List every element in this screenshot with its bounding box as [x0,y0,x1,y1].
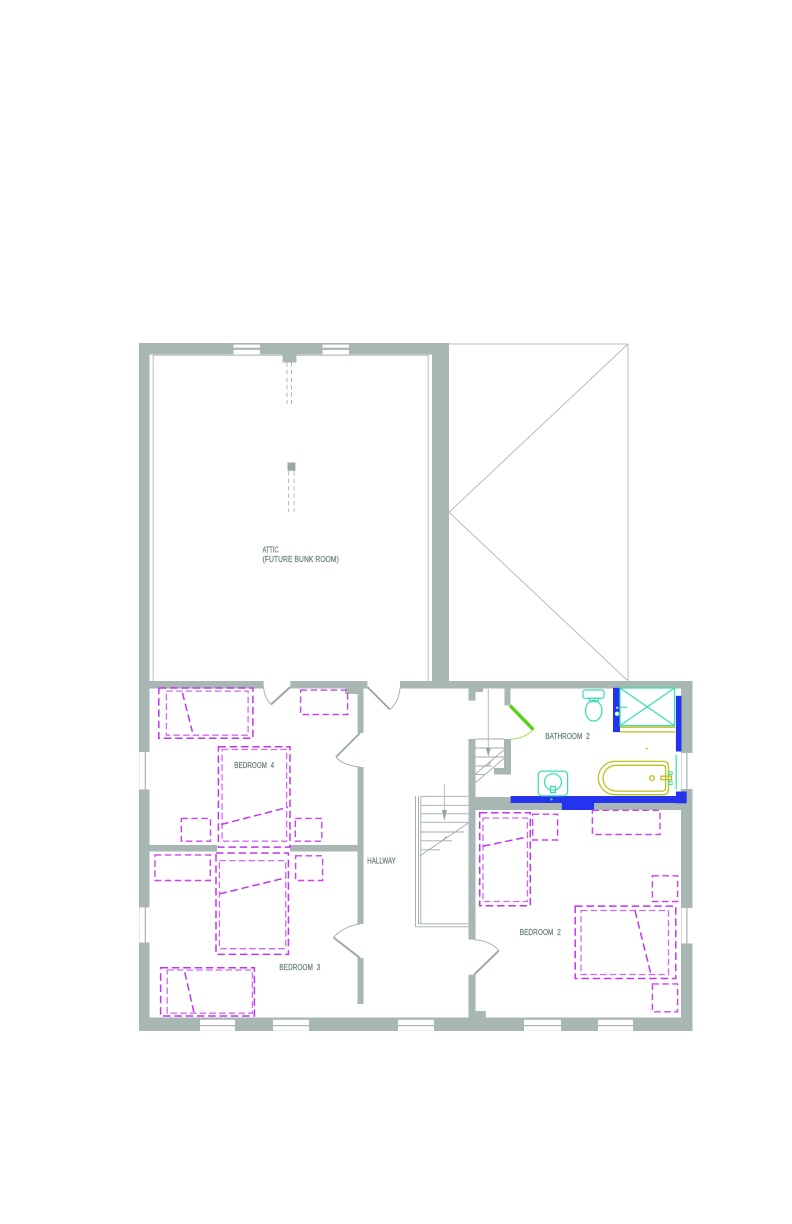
svg-text:BEDROOM 2: BEDROOM 2 [520,927,561,937]
svg-text:BEDROOM 4: BEDROOM 4 [234,761,274,770]
svg-text:BEDROOM 3: BEDROOM 3 [279,962,320,972]
svg-text:BATHROOM 2: BATHROOM 2 [545,731,589,741]
svg-text:(FUTURE BUNK ROOM): (FUTURE BUNK ROOM) [263,554,339,564]
svg-text:HALLWAY: HALLWAY [367,857,396,866]
